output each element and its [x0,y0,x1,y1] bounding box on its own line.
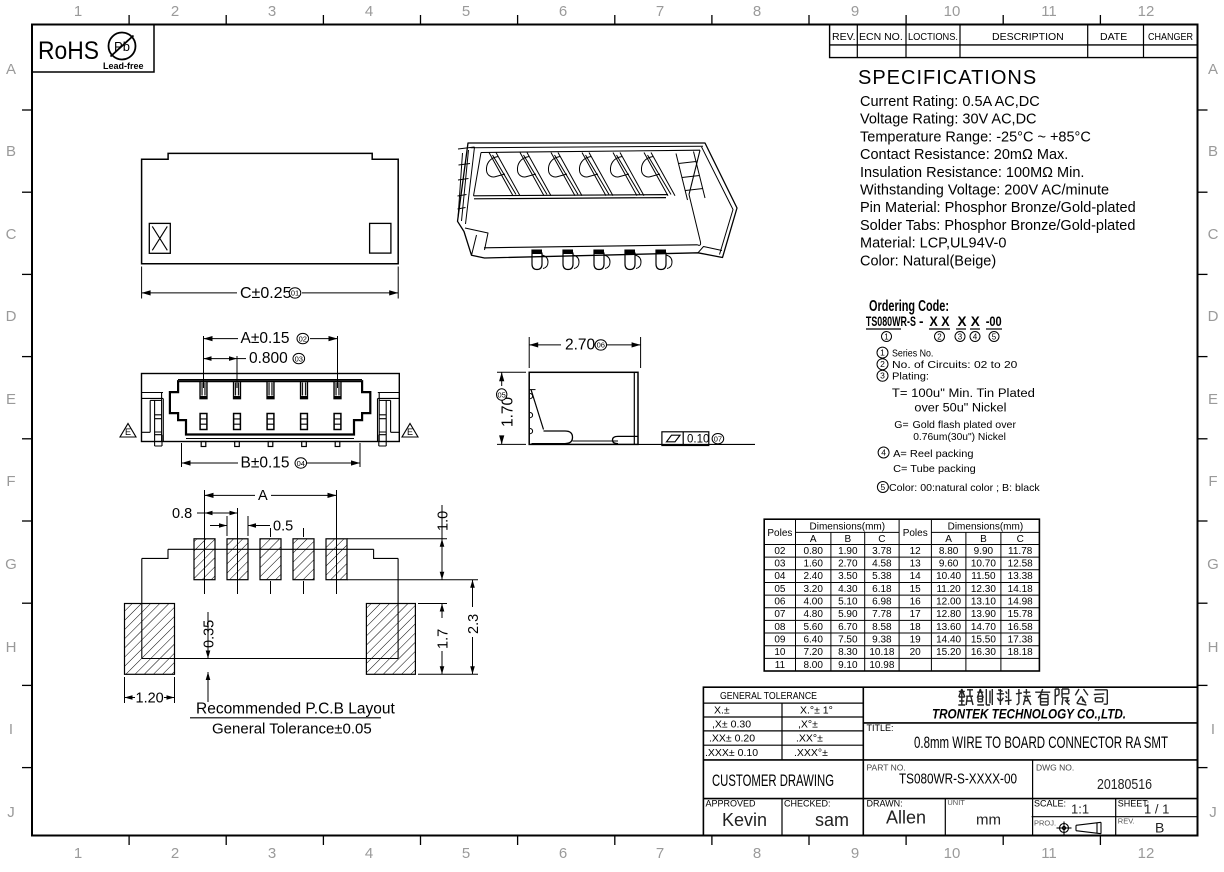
svg-text:sam: sam [815,810,849,830]
svg-text:9.90: 9.90 [974,546,994,557]
svg-text:14.18: 14.18 [1008,584,1033,595]
svg-text:3: 3 [880,371,885,381]
svg-text:13.90: 13.90 [971,609,996,620]
svg-text:Contact Resistance: 20mΩ Max.: Contact Resistance: 20mΩ Max. [860,147,1068,163]
svg-text:Dimensions(mm): Dimensions(mm) [810,522,886,533]
svg-text:0.76um(30u") Nickel: 0.76um(30u") Nickel [913,431,1006,443]
svg-text:10.40: 10.40 [936,571,961,582]
svg-text:4.30: 4.30 [838,584,858,595]
svg-text:13: 13 [910,559,922,570]
svg-text:2.40: 2.40 [803,571,823,582]
svg-text:B: B [844,534,851,545]
svg-text:05: 05 [498,390,506,399]
svg-text:5.10: 5.10 [838,597,858,608]
svg-text:1: 1 [880,348,885,358]
svg-text:1: 1 [884,333,889,342]
svg-text:0.800: 0.800 [249,350,288,367]
svg-text:D: D [6,308,17,325]
svg-text:18.18: 18.18 [1008,647,1033,658]
svg-text:E: E [407,427,413,437]
svg-text:0.80: 0.80 [803,546,823,557]
svg-text:8.58: 8.58 [872,622,892,633]
svg-text:D: D [1208,308,1219,325]
svg-text:3: 3 [268,3,276,20]
svg-text:3: 3 [958,333,963,342]
svg-text:7.78: 7.78 [872,609,892,620]
svg-text:17: 17 [910,609,922,620]
svg-text:2: 2 [937,333,942,342]
svg-text:10: 10 [944,3,961,20]
svg-text:DESCRIPTION: DESCRIPTION [992,31,1064,43]
svg-text:15.20: 15.20 [936,647,961,658]
svg-text:-00: -00 [986,314,1002,329]
svg-text:B: B [1208,143,1218,160]
svg-text:04: 04 [774,571,786,582]
svg-text:12.80: 12.80 [936,609,961,620]
svg-text:J: J [1209,804,1217,821]
svg-text:Temperature Range: -25°C ~ +85: Temperature Range: -25°C ~ +85°C [860,129,1091,145]
svg-text:TITLE:: TITLE: [867,723,894,733]
svg-text:G: G [5,556,17,573]
svg-text:12: 12 [910,546,922,557]
svg-text:Material: LCP,UL94V-0: Material: LCP,UL94V-0 [860,236,1006,252]
svg-text:09: 09 [774,635,786,646]
svg-text:H: H [1208,639,1219,656]
svg-text:-: - [919,314,924,329]
svg-text:,X°±: ,X°± [798,719,818,731]
svg-text:DWG NO.: DWG NO. [1036,763,1074,773]
svg-text:12.00: 12.00 [936,597,961,608]
svg-text:Ordering Code:: Ordering Code: [869,298,949,315]
svg-text:Current Rating: 0.5A AC,DC: Current Rating: 0.5A AC,DC [860,94,1040,110]
svg-text:.XXX°±: .XXX°± [794,747,828,759]
svg-text:5: 5 [881,482,886,492]
svg-text:T= 100u" Min. Tin Plated: T= 100u" Min. Tin Plated [892,388,1035,400]
svg-text:1.20: 1.20 [136,690,164,706]
svg-text:mm: mm [976,812,1001,829]
svg-text:8.00: 8.00 [803,660,823,671]
svg-text:6.40: 6.40 [803,635,823,646]
svg-text:2.70: 2.70 [838,559,858,570]
svg-text:F: F [6,473,15,490]
svg-text:4: 4 [365,3,373,20]
svg-text:REV.: REV. [832,31,856,43]
svg-text:Poles: Poles [767,528,792,539]
svg-text:,X± 0.30: ,X± 0.30 [712,719,751,731]
svg-text:2.70: 2.70 [565,337,596,354]
svg-text:14.70: 14.70 [971,622,996,633]
svg-text:Dimensions(mm): Dimensions(mm) [948,522,1024,533]
svg-text:F: F [1208,473,1217,490]
svg-text:2.3: 2.3 [466,614,482,634]
svg-text:7.50: 7.50 [838,635,858,646]
svg-text:6.70: 6.70 [838,622,858,633]
svg-text:1.90: 1.90 [838,546,858,557]
svg-text:1.7: 1.7 [436,629,452,649]
svg-text:E: E [6,391,16,408]
svg-text:1: 1 [74,845,82,862]
svg-text:3.78: 3.78 [872,546,892,557]
svg-text:1 / 1: 1 / 1 [1144,802,1169,817]
svg-text:13.10: 13.10 [971,597,996,608]
svg-text:19: 19 [910,635,922,646]
svg-text:C: C [1017,534,1024,545]
svg-text:03: 03 [295,354,303,363]
svg-text:16: 16 [910,597,922,608]
svg-text:4.00: 4.00 [803,597,823,608]
svg-text:10.98: 10.98 [869,660,894,671]
svg-text:3.20: 3.20 [803,584,823,595]
svg-text:4.58: 4.58 [872,559,892,570]
svg-text:14.98: 14.98 [1008,597,1033,608]
svg-text:E: E [125,427,131,437]
svg-text:0.8mm WIRE TO BOARD CONNECTOR: 0.8mm WIRE TO BOARD CONNECTOR RA SMT [914,734,1168,752]
svg-text:0.5: 0.5 [273,519,293,535]
svg-text:No. of Circuits: 02 to 20: No. of Circuits: 02 to 20 [892,360,1018,371]
svg-text:RoHS: RoHS [38,37,99,65]
svg-text:12.58: 12.58 [1008,559,1033,570]
svg-text:06: 06 [597,341,605,350]
svg-text:X: X [958,314,967,329]
svg-text:13.38: 13.38 [1008,571,1033,582]
svg-text:J: J [7,804,15,821]
svg-text:9: 9 [851,845,859,862]
svg-text:9.60: 9.60 [939,559,959,570]
svg-text:0.35: 0.35 [202,620,218,648]
svg-text:PROJ.: PROJ. [1034,819,1056,828]
svg-text:REV.: REV. [1118,817,1135,826]
svg-text:9: 9 [851,3,859,20]
svg-text:8: 8 [753,845,761,862]
svg-text:G: G [1207,556,1219,573]
svg-text:11: 11 [775,660,786,671]
svg-text:1:1: 1:1 [1071,802,1089,817]
svg-text:18: 18 [910,622,922,633]
svg-text:06: 06 [774,597,786,608]
svg-text:04: 04 [297,459,305,468]
svg-text:14: 14 [910,571,922,582]
svg-text:08: 08 [774,622,786,633]
svg-text:1.60: 1.60 [803,559,823,570]
svg-text:Poles: Poles [903,528,928,539]
svg-text:H: H [6,639,17,656]
svg-text:A= Reel packing: A= Reel packing [893,448,974,460]
svg-text:12: 12 [1138,845,1155,862]
svg-text:6.18: 6.18 [872,584,892,595]
svg-text:2: 2 [171,3,179,20]
svg-text:X X: X X [930,314,950,329]
svg-text:14.40: 14.40 [936,635,961,646]
svg-text:10: 10 [944,845,961,862]
svg-text:A±0.15: A±0.15 [241,330,290,347]
svg-text:A: A [6,61,16,78]
svg-text:X: X [971,314,980,329]
svg-text:CUSTOMER DRAWING: CUSTOMER DRAWING [712,771,834,790]
svg-text:3.50: 3.50 [838,571,858,582]
svg-text:07: 07 [714,435,722,444]
svg-text:2: 2 [171,845,179,862]
svg-text:ECN NO.: ECN NO. [859,31,903,43]
svg-text:12: 12 [1138,3,1155,20]
svg-text:11.50: 11.50 [971,571,996,582]
svg-text:9.10: 9.10 [838,660,858,671]
svg-text:.XX± 0.20: .XX± 0.20 [709,733,755,745]
svg-text:10.70: 10.70 [971,559,996,570]
svg-text:E: E [1208,391,1218,408]
svg-text:C= Tube packing: C= Tube packing [893,463,976,475]
svg-text:5: 5 [462,3,470,20]
svg-text:.XX°±: .XX°± [796,733,823,745]
svg-text:10.18: 10.18 [869,647,894,658]
svg-text:C: C [1208,226,1219,243]
svg-text:5: 5 [992,333,997,342]
svg-text:Pin Material: Phosphor Bronze/: Pin Material: Phosphor Bronze/Gold-plate… [860,200,1136,216]
svg-text:4: 4 [365,845,373,862]
svg-text:7.20: 7.20 [803,647,823,658]
svg-text:LOCTIONS.: LOCTIONS. [908,31,958,43]
svg-text:07: 07 [774,609,786,620]
svg-text:8: 8 [753,3,761,20]
svg-text:5.38: 5.38 [872,571,892,582]
svg-text:X.°± 1°: X.°± 1° [800,705,833,717]
svg-text:01: 01 [291,289,299,298]
svg-text:Allen: Allen [886,808,926,828]
svg-text:GENERAL TOLERANCE: GENERAL TOLERANCE [720,690,817,702]
svg-text:A: A [258,488,268,504]
svg-text:5.90: 5.90 [838,609,858,620]
svg-text:3: 3 [268,845,276,862]
svg-text:1.0: 1.0 [436,511,452,531]
svg-text:Solder Tabs: Phosphor Bronze/G: Solder Tabs: Phosphor Bronze/Gold-plated [860,218,1135,234]
svg-text:I: I [1211,721,1215,738]
svg-text:C±0.25: C±0.25 [240,285,292,302]
svg-text:13.60: 13.60 [936,622,961,633]
svg-text:4: 4 [973,333,978,342]
svg-text:6: 6 [559,845,567,862]
svg-text:I: I [9,721,13,738]
svg-text:B: B [6,143,16,160]
svg-text:17.38: 17.38 [1008,635,1033,646]
svg-text:8.30: 8.30 [838,647,858,658]
svg-text:Pb: Pb [114,39,130,54]
svg-text:02: 02 [774,546,786,557]
svg-text:Insulation Resistance: 100MΩ M: Insulation Resistance: 100MΩ Min. [860,165,1084,181]
svg-text:4: 4 [881,448,886,458]
svg-text:Voltage Rating: 30V AC,DC: Voltage Rating: 30V AC,DC [860,112,1037,128]
svg-text:over 50u" Nickel: over 50u" Nickel [914,402,1006,414]
svg-text:UNIT: UNIT [947,798,965,807]
svg-text:15: 15 [910,584,922,595]
svg-text:16.30: 16.30 [971,647,996,658]
svg-text:.XXX± 0.10: .XXX± 0.10 [705,747,758,759]
svg-text:CHANGER: CHANGER [1148,31,1193,43]
svg-text:15.50: 15.50 [971,635,996,646]
svg-text:11.20: 11.20 [936,584,961,595]
svg-text:20: 20 [910,647,922,658]
svg-text:8.80: 8.80 [939,546,959,557]
svg-text:Color: Natural(Beige): Color: Natural(Beige) [860,253,996,269]
svg-text:SCALE:: SCALE: [1034,799,1066,809]
svg-text:Color: 00:natural color ;: Color: 00:natural color ; B: black [889,482,1040,494]
svg-text:5: 5 [462,845,470,862]
svg-text:9.38: 9.38 [872,635,892,646]
svg-text:B: B [980,534,987,545]
svg-text:6: 6 [559,3,567,20]
svg-text:05: 05 [774,584,786,595]
svg-text:11: 11 [1041,845,1057,862]
svg-text:2: 2 [880,359,885,369]
svg-text:Series No.: Series No. [892,349,933,360]
svg-text:02: 02 [299,334,307,343]
svg-text:DATE: DATE [1100,31,1127,43]
svg-text:6.98: 6.98 [872,597,892,608]
svg-text:7: 7 [656,3,664,20]
svg-text:C: C [6,226,17,243]
svg-text:4.80: 4.80 [803,609,823,620]
svg-text:SPECIFICATIONS: SPECIFICATIONS [858,67,1037,89]
svg-text:0.10: 0.10 [687,434,709,446]
svg-text:0.8: 0.8 [172,506,192,522]
svg-text:11: 11 [1041,3,1057,20]
svg-text:A: A [1208,61,1218,78]
svg-text:Recommended P.C.B Layout: Recommended P.C.B Layout [196,701,395,718]
svg-text:A: A [945,534,952,545]
svg-text:APPROVED: APPROVED [706,799,757,809]
svg-text:Withstanding Voltage: 200V AC/: Withstanding Voltage: 200V AC/minute [860,183,1109,199]
svg-text:A: A [810,534,817,545]
svg-text:20180516: 20180516 [1097,777,1152,793]
svg-text:General Tolerance±0.05: General Tolerance±0.05 [212,721,372,738]
svg-text:03: 03 [774,559,786,570]
svg-text:B±0.15: B±0.15 [241,455,290,472]
svg-text:16.58: 16.58 [1008,622,1033,633]
svg-text:TS080WR-S: TS080WR-S [866,314,916,329]
svg-text:TS080WR-S-XXXX-00: TS080WR-S-XXXX-00 [899,772,1017,788]
svg-text:5.60: 5.60 [803,622,823,633]
svg-text:C: C [878,534,885,545]
svg-text:11.78: 11.78 [1008,546,1033,557]
svg-text:Kevin: Kevin [722,810,767,830]
svg-text:X.±: X.± [714,705,730,717]
svg-text:15.78: 15.78 [1008,609,1033,620]
svg-text:10: 10 [774,647,786,658]
svg-text:B: B [1155,820,1164,836]
svg-text:Lead-free: Lead-free [103,61,144,71]
svg-text:1: 1 [74,3,82,20]
svg-text:TRONTEK TECHNOLOGY CO.,LTD.: TRONTEK TECHNOLOGY CO.,LTD. [932,707,1126,722]
svg-text:12.30: 12.30 [971,584,996,595]
svg-text:CHECKED:: CHECKED: [784,799,831,809]
svg-text:G=: G= [894,419,908,431]
svg-text:Plating:: Plating: [892,372,929,383]
svg-text:1.70: 1.70 [500,396,517,427]
svg-text:7: 7 [656,845,664,862]
svg-text:Gold flash plated over: Gold flash plated over [913,419,1017,431]
